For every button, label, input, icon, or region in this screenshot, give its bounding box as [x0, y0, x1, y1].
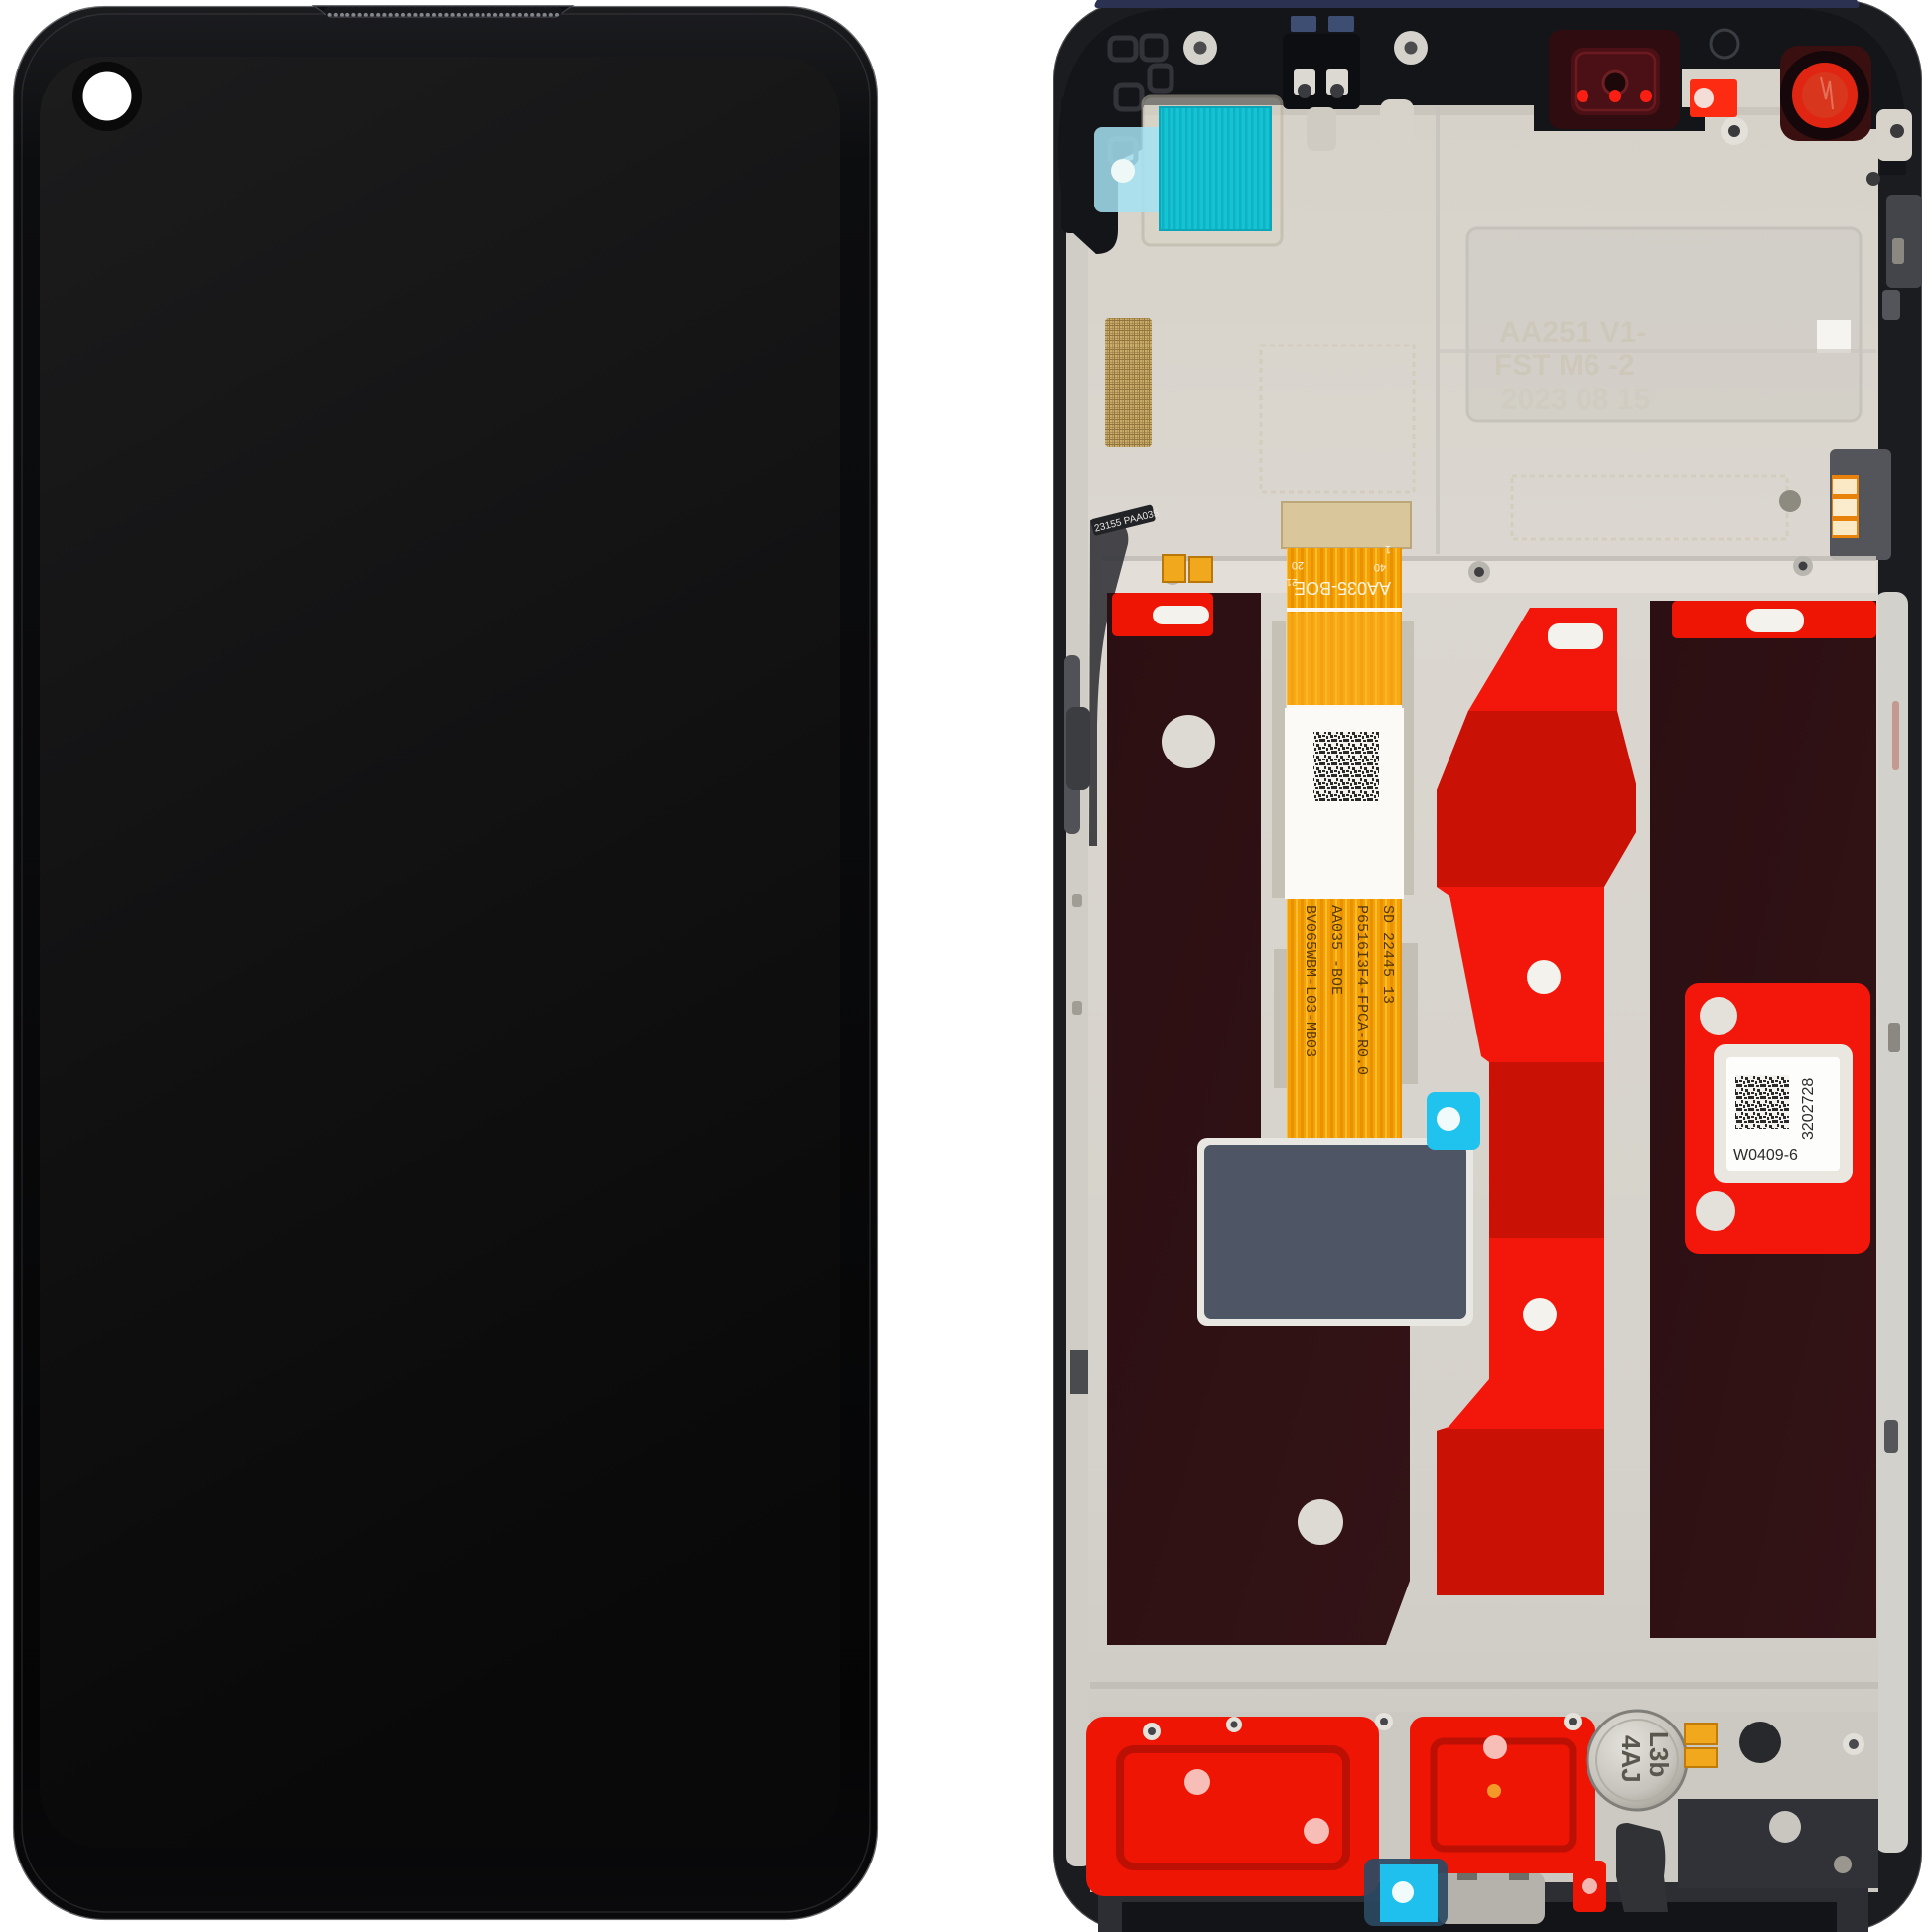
svg-text:3202728: 3202728: [1800, 1078, 1817, 1140]
svg-text:BV065WBM-L03-MB03: BV065WBM-L03-MB03: [1302, 905, 1318, 1057]
svg-text:AA035-BOE: AA035-BOE: [1294, 578, 1391, 598]
svg-text:1: 1: [1385, 543, 1391, 555]
svg-text:P6516I3F4-FPCA-R0.0: P6516I3F4-FPCA-R0.0: [1353, 905, 1370, 1075]
svg-text:40: 40: [1374, 561, 1386, 573]
svg-text:L3b: L3b: [1644, 1731, 1674, 1777]
svg-text:2023 08 15: 2023 08 15: [1501, 383, 1650, 416]
svg-text:21: 21: [1286, 576, 1298, 587]
svg-text:AA251 V1-: AA251 V1-: [1499, 316, 1646, 348]
svg-text:SD 22445 13: SD 22445 13: [1379, 905, 1396, 1004]
svg-text:W0409-6: W0409-6: [1733, 1147, 1798, 1164]
svg-text:FST M6 -2: FST M6 -2: [1494, 349, 1635, 382]
svg-text:4AJ: 4AJ: [1616, 1735, 1646, 1783]
svg-text:AA035 -BOE: AA035 -BOE: [1327, 905, 1344, 995]
svg-text:20: 20: [1292, 559, 1304, 571]
